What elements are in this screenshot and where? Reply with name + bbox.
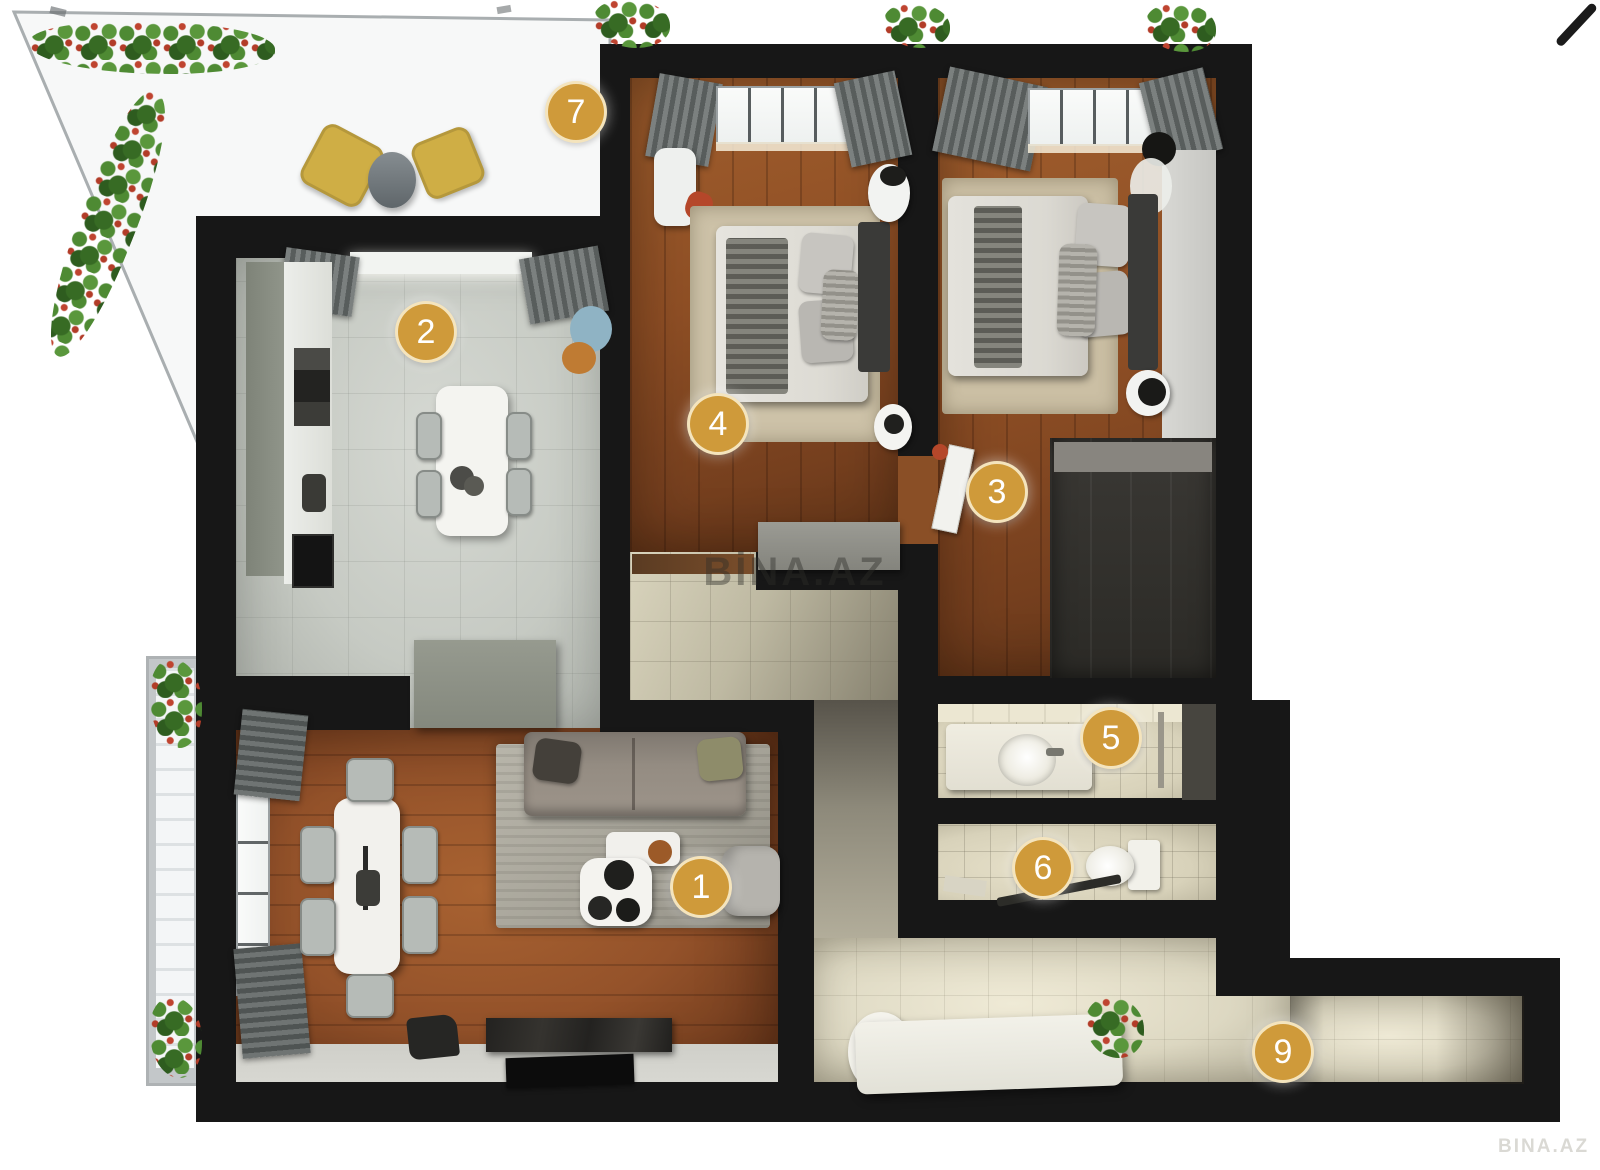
- bathroom5-sink: [998, 734, 1056, 786]
- entry-bench: [855, 1013, 1123, 1094]
- kitchen-chair: [506, 412, 532, 460]
- bedroom3-door-threshold: [898, 456, 938, 544]
- coffee-table-decor: [616, 898, 640, 922]
- dining-chair: [300, 898, 336, 956]
- dining-chair: [346, 758, 394, 802]
- room-badge-4: 4: [687, 393, 749, 455]
- kitchen-jar: [302, 474, 326, 512]
- kitchen-sideboard: [414, 640, 556, 728]
- decor-easel: [406, 1014, 460, 1061]
- dining-chair: [402, 826, 438, 884]
- room-badge-9-number: 9: [1274, 1035, 1293, 1069]
- bedroom4-window: [716, 86, 852, 144]
- dining-table-decor: [356, 870, 380, 906]
- kitchen-table: [436, 386, 508, 536]
- wall-segment: [600, 44, 630, 220]
- room-badge-3: 3: [966, 461, 1028, 523]
- bedroom4-window-glow: [716, 142, 848, 151]
- sofa-pillow-olive: [696, 736, 744, 782]
- bedroom3-nightstand-lamp: [1138, 378, 1166, 406]
- room-badge-7-number: 7: [567, 95, 586, 129]
- room-badge-2-number: 2: [417, 315, 436, 349]
- watermark: BİNA.AZ: [660, 550, 930, 595]
- watermark-corner: BINA.AZ: [1498, 1136, 1589, 1158]
- wall-segment: [1522, 958, 1560, 1122]
- bedroom3-door-accent: [932, 444, 948, 460]
- bedroom3-wardrobe: [1050, 438, 1216, 678]
- bedroom3-wardrobe-shelf: [1054, 442, 1212, 472]
- coffee-table-bowl: [648, 840, 672, 864]
- coffee-table-decor: [604, 860, 634, 890]
- bathroom5-wall-tiles: [938, 704, 1216, 722]
- room-badge-1-number: 1: [692, 870, 711, 904]
- hallway-strip-floor: [812, 700, 906, 938]
- wall-segment: [196, 216, 236, 1122]
- bedroom4-foot-stool-top: [884, 414, 904, 434]
- bedroom3-pillow-striped: [1056, 243, 1097, 336]
- kitchen-chair: [416, 412, 442, 460]
- room-badge-6-number: 6: [1034, 851, 1053, 885]
- living-curtain-bottom: [233, 943, 310, 1059]
- kitchen-oven: [292, 534, 334, 588]
- bedroom4-bed-runner: [726, 238, 788, 394]
- wall-segment: [778, 700, 814, 1094]
- kitchen-chair: [416, 470, 442, 518]
- bathroom5-faucet: [1046, 748, 1064, 756]
- dining-chair: [300, 826, 336, 884]
- bedroom4-nightstand-lamp: [880, 166, 906, 186]
- floor-plan: BİNA.AZ BINA.AZ 1 2 3 4 5 6 7 9: [0, 0, 1600, 1170]
- wall-segment: [898, 544, 938, 938]
- room-badge-9: 9: [1252, 1021, 1314, 1083]
- tv: [506, 1054, 635, 1088]
- wall-segment: [938, 798, 1252, 824]
- dining-chair: [346, 974, 394, 1018]
- dining-chair: [402, 896, 438, 954]
- bathroom5-cabinet: [1182, 704, 1216, 800]
- room-badge-5: 5: [1080, 707, 1142, 769]
- room-badge-5-number: 5: [1102, 721, 1121, 755]
- bedroom4-pillow-striped: [820, 269, 860, 341]
- kitchen-pouf-orange: [562, 342, 596, 374]
- bathroom5-towel-rail: [1158, 712, 1164, 788]
- bedroom3-bed-runner: [974, 206, 1022, 368]
- sofa-seam: [632, 738, 635, 810]
- kitchen-table-vase: [464, 476, 484, 496]
- wall-segment: [898, 900, 1290, 938]
- room-badge-1: 1: [670, 856, 732, 918]
- room-badge-2: 2: [395, 301, 457, 363]
- wall-segment: [898, 44, 938, 456]
- kitchen-chair: [506, 468, 532, 516]
- wall-segment: [898, 676, 1252, 704]
- room-badge-4-number: 4: [709, 407, 728, 441]
- room-badge-3-number: 3: [988, 475, 1007, 509]
- terrace-side-table: [368, 152, 416, 208]
- corridor-right-shade: [1436, 996, 1524, 1084]
- wall-segment: [1216, 700, 1290, 996]
- sofa-pillow-dark: [531, 737, 582, 785]
- kitchen-ceiling-light: [350, 252, 532, 274]
- kitchen-wall-shelf: [294, 348, 330, 426]
- room-badge-7: 7: [545, 81, 607, 143]
- room-badge-6: 6: [1012, 837, 1074, 899]
- coffee-table-decor: [588, 896, 612, 920]
- bedroom3-headboard: [1128, 194, 1158, 370]
- tv-console: [486, 1018, 672, 1052]
- bedroom4-headboard: [858, 222, 890, 372]
- wall-segment: [1270, 958, 1560, 996]
- living-curtain-top: [234, 709, 309, 801]
- kitchen-counter: [246, 262, 284, 576]
